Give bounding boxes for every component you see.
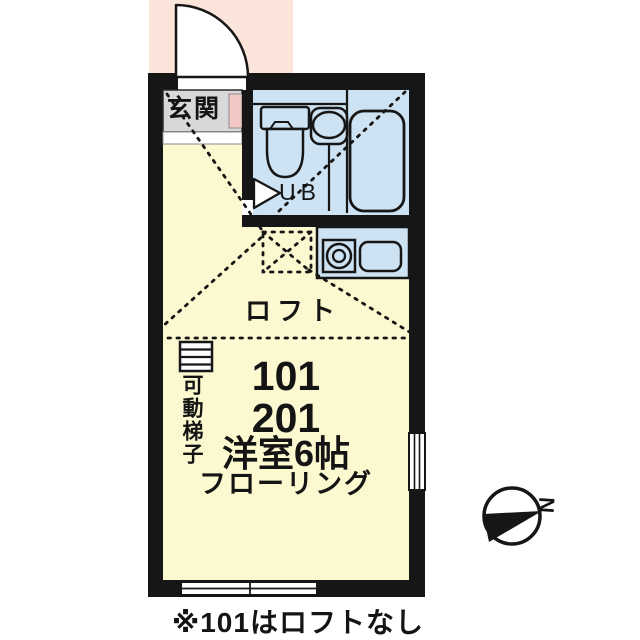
- entrance-label: 玄関: [167, 97, 221, 122]
- kitchen-sink-icon: [360, 242, 401, 271]
- window-right-icon: [409, 433, 425, 490]
- loft-label: ロフト: [245, 298, 341, 324]
- genkan-step: [163, 132, 242, 144]
- wall-unit-bath-left: [242, 90, 253, 200]
- bathtub-icon: [350, 111, 404, 211]
- wall-top: [246, 73, 425, 90]
- window-bottom-icon: [181, 582, 317, 595]
- wall-left: [148, 73, 163, 597]
- flooring-label: フローリング: [163, 471, 409, 498]
- wall-unit-bath-bottom: [242, 215, 409, 227]
- toilet-tank-icon: [261, 107, 309, 129]
- floor-plan: 玄関 UB ロフト 101 201 洋室6帖 フローリング 可動梯子 N ※10…: [0, 0, 640, 640]
- compass-icon: [483, 488, 542, 544]
- unit-bath-label: UB: [279, 181, 321, 204]
- toilet-icon: [267, 129, 303, 177]
- footnote-label: ※101はロフトなし: [172, 609, 424, 637]
- movable-ladder-label: 可動梯子: [181, 374, 202, 466]
- shoe-box: [229, 94, 242, 128]
- compass-north-label: N: [534, 496, 557, 513]
- wall-right: [409, 73, 425, 597]
- washbasin-icon: [313, 112, 345, 138]
